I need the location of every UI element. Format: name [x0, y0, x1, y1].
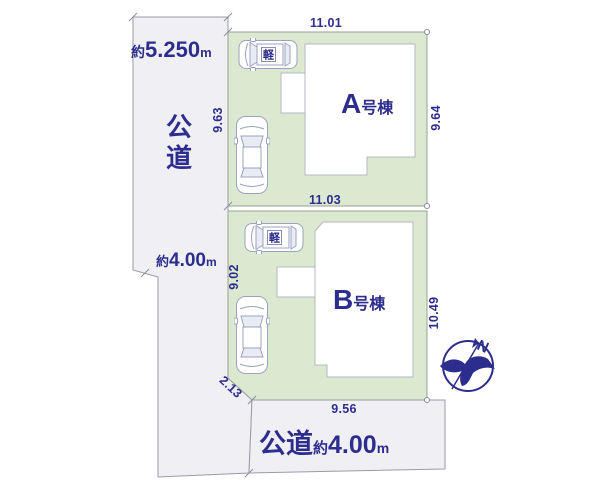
- width-unit: m: [206, 255, 217, 269]
- width-unit: m: [200, 45, 212, 60]
- building-a-annex: [281, 73, 305, 113]
- building-a-suffix: 号棟: [361, 98, 394, 117]
- building-b-annex: [277, 267, 315, 297]
- plot-b-left-dimension: 9.02: [227, 264, 241, 290]
- plot-a-top-dimension: 11.01: [310, 16, 342, 30]
- survey-node-mid-right: [425, 204, 430, 209]
- site-plan-svg: 軽 A号棟 B号棟 11.01 9.63 9.64 11.03 9.02 10.…: [0, 0, 600, 497]
- road-left-label-char2: 道: [166, 143, 192, 173]
- road-name: 公道: [259, 428, 313, 459]
- width-unit: m: [377, 440, 389, 456]
- compass-north-arrow: N: [440, 337, 495, 391]
- building-a-letter: A: [341, 88, 361, 119]
- sedan-car-plot-a-icon: [234, 117, 270, 194]
- building-b-letter: B: [333, 284, 353, 315]
- kei-car-plot-a-icon: [239, 38, 297, 72]
- survey-node-bottom-right: [425, 398, 430, 403]
- approx-prefix: 約: [156, 254, 169, 269]
- site-plan-diagram: 軽 A号棟 B号棟 11.01 9.63 9.64 11.03 9.02 10.…: [0, 0, 600, 497]
- approx-prefix: 約: [313, 439, 328, 457]
- width-value: 4.00: [328, 431, 377, 459]
- approx-prefix: 約: [131, 44, 145, 60]
- kei-car-plot-b-icon: [245, 221, 303, 255]
- plot-b-right-dimension: 10.49: [427, 297, 441, 330]
- plot-b-top-dimension: 11.03: [309, 193, 341, 207]
- width-value: 4.00: [169, 250, 206, 271]
- road-left-label-char1: 公: [166, 112, 192, 142]
- plot-b-bottom-dimension: 9.56: [331, 402, 357, 416]
- sedan-car-plot-b-icon: [234, 297, 270, 374]
- survey-node-top-right: [425, 30, 430, 35]
- plot-a-left-dimension: 9.63: [211, 107, 225, 133]
- building-b-suffix: 号棟: [353, 294, 386, 313]
- width-value: 5.250: [145, 37, 200, 62]
- plot-a-right-dimension: 9.64: [429, 105, 443, 131]
